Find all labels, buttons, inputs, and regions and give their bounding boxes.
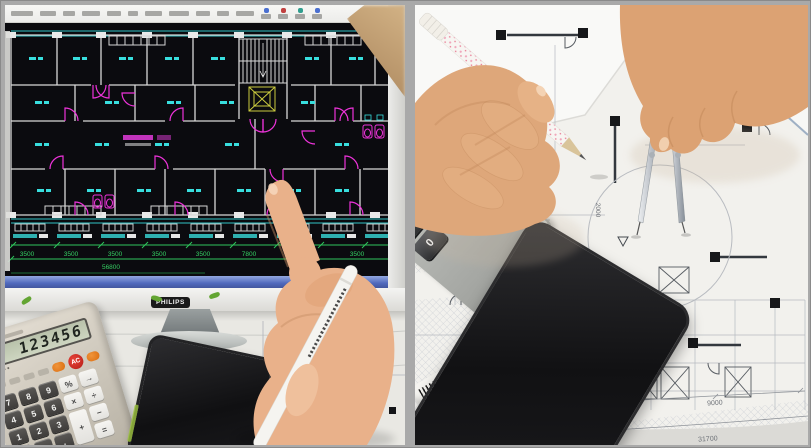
hands-tools-overlay (415, 5, 808, 445)
left-photo-cad-monitor: 3500 3500 3500 3500 3500 7800 3500 3500 … (5, 5, 405, 445)
left-hand-holding-pencil (415, 65, 562, 236)
hand-with-pen-overlay (5, 5, 405, 445)
compass-needle (682, 222, 685, 233)
compass-needle (637, 222, 640, 235)
photo-collage: 3500 3500 3500 3500 3500 7800 3500 3500 … (0, 0, 811, 448)
right-photo-blueprint-drafting: 3400 9000 31700 2000 7 8 4 5 0 · (415, 5, 808, 445)
right-hand-holding-compass (607, 5, 808, 154)
pencil-lead (579, 154, 587, 162)
